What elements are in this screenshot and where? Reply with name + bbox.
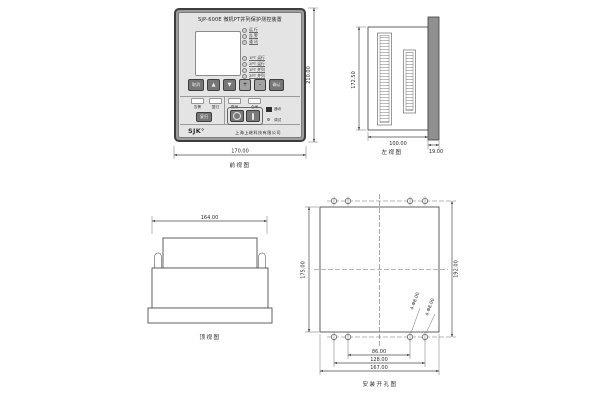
side-height-dim: 172.50 bbox=[351, 71, 357, 89]
open-circle-icon bbox=[233, 112, 241, 120]
close-key bbox=[246, 110, 260, 122]
switch-window bbox=[248, 98, 261, 104]
top-width-dim: 164.00 bbox=[201, 215, 219, 221]
brand-logo: SJK° bbox=[188, 127, 205, 135]
close-bar-icon bbox=[252, 113, 254, 120]
cutout-rect bbox=[320, 207, 439, 332]
top-view-caption: 顶视图 bbox=[199, 333, 220, 341]
connector-strip bbox=[406, 53, 413, 111]
down-arrow-key: ▼ bbox=[223, 79, 236, 91]
led-indicator-icon bbox=[242, 68, 247, 73]
comm-port-icon bbox=[266, 107, 272, 112]
up-arrow-key: ▲ bbox=[207, 79, 220, 91]
port-label: 通讯 bbox=[274, 107, 281, 111]
signal-window bbox=[191, 98, 204, 104]
cutout-width-dim: 167.00 bbox=[370, 365, 388, 371]
led-label: 通 讯 bbox=[249, 40, 258, 45]
switch-window bbox=[228, 98, 241, 104]
hole-spec-label-1: 4-Φ8.00 bbox=[409, 292, 421, 311]
debug-label: 调试 bbox=[274, 118, 281, 122]
top-view: 164.00 顶视图 bbox=[148, 215, 272, 341]
hole-span-dim-1: 86.00 bbox=[372, 349, 386, 355]
reset-key: 复归 bbox=[196, 112, 212, 122]
led-indicator-icon bbox=[242, 62, 247, 67]
lcd-screen bbox=[195, 31, 241, 76]
cutout-height-dim: 175.00 bbox=[301, 261, 307, 279]
cancel-key: 取消 bbox=[188, 79, 204, 91]
front-width-dim: 170.00 bbox=[231, 149, 249, 155]
hole-span-dim-2: 128.00 bbox=[370, 357, 388, 363]
mounting-clip bbox=[259, 253, 266, 268]
mounting-view: 175.00 192.00 86.00 128.00 167.00 4-Φ8.0… bbox=[301, 194, 460, 388]
signal-label: 告警 bbox=[191, 105, 204, 109]
panel-divider bbox=[224, 96, 225, 124]
debug-led-icon bbox=[267, 118, 270, 121]
plus-key: + bbox=[239, 79, 251, 91]
side-view-caption: 左视图 bbox=[381, 148, 402, 156]
led-row-comm: 通 讯 bbox=[242, 40, 258, 45]
confirm-key: 确认 bbox=[269, 79, 284, 91]
mounting-clip bbox=[155, 253, 162, 268]
front-height-dim: 210.00 bbox=[306, 66, 312, 84]
signal-window bbox=[209, 98, 222, 104]
panel-divider bbox=[180, 96, 300, 97]
open-key bbox=[230, 110, 244, 122]
hole-span-height-dim: 192.00 bbox=[454, 260, 460, 278]
technical-drawing-canvas: SJP-600E 微机PT并列保护测控装置 运 行 告 警 通 讯 1PT 运行… bbox=[0, 0, 600, 400]
terminal-strip bbox=[380, 36, 389, 123]
side-width-dim: 100.00 bbox=[389, 141, 407, 147]
led-indicator-icon bbox=[242, 40, 247, 45]
side-view: 172.50 100.00 19.00 左视图 bbox=[351, 17, 443, 156]
company-name: 上海上继科技有限公司 bbox=[214, 130, 302, 136]
mounting-holes bbox=[331, 197, 427, 342]
panel-thickness-dim: 19.00 bbox=[429, 149, 443, 155]
hole-spec-label-2: 4-Φ8.00 bbox=[424, 298, 436, 317]
front-view-caption: 前视图 bbox=[229, 161, 250, 169]
mounting-view-caption: 安装开孔图 bbox=[362, 380, 397, 388]
led-indicator-icon bbox=[242, 56, 247, 61]
signal-label: 复归 bbox=[209, 105, 222, 109]
device-title: SJP-600E 微机PT并列保护测控装置 bbox=[178, 16, 302, 23]
minus-key: - bbox=[254, 79, 266, 91]
led-indicator-icon bbox=[242, 28, 247, 33]
front-panel-bar bbox=[428, 17, 439, 140]
led-indicator-icon bbox=[242, 34, 247, 39]
